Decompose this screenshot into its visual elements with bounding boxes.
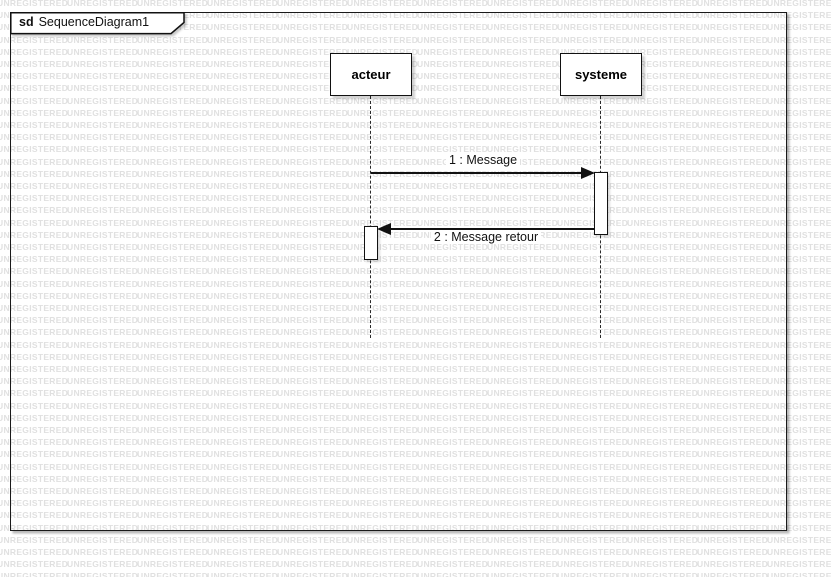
watermark-word: UNREGISTERED bbox=[767, 558, 831, 570]
watermark-word: UNREGISTERED bbox=[207, 534, 277, 546]
watermark-word: UNREGISTERED bbox=[697, 534, 767, 546]
watermark-word: UNREGISTERED bbox=[137, 546, 207, 558]
watermark-word: UNREGISTERED bbox=[137, 570, 207, 577]
watermark-word: UNREGISTERED bbox=[417, 558, 487, 570]
watermark-word: UNREGISTERED bbox=[767, 534, 831, 546]
watermark-word: UNREGISTERED bbox=[67, 570, 137, 577]
watermark-word: UNREGISTERED bbox=[627, 558, 697, 570]
diagram-title: SequenceDiagram1 bbox=[39, 15, 150, 29]
message-2-label[interactable]: 2 : Message retour bbox=[378, 230, 594, 244]
watermark-word: UNREGISTERED bbox=[67, 546, 137, 558]
watermark-word: UNREGISTERED bbox=[347, 558, 417, 570]
watermark-word: UNREGISTERED bbox=[557, 534, 627, 546]
watermark-word: UNREGISTERED bbox=[347, 546, 417, 558]
watermark-word: UNREGISTERED bbox=[767, 546, 831, 558]
watermark-word: UNREGISTERED bbox=[207, 558, 277, 570]
message-2-label-text: 2 : Message retour bbox=[431, 230, 541, 244]
watermark-word: UNREGISTERED bbox=[697, 546, 767, 558]
diagram-canvas: UNREGISTEREDUNREGISTEREDUNREGISTEREDUNRE… bbox=[0, 0, 831, 577]
watermark-word: UNREGISTERED bbox=[557, 546, 627, 558]
lifeline-line-acteur[interactable] bbox=[370, 96, 371, 338]
watermark-word: UNREGISTERED bbox=[0, 558, 67, 570]
sd-frame-label[interactable]: sdSequenceDiagram1 bbox=[10, 12, 190, 38]
watermark-row: UNREGISTEREDUNREGISTEREDUNREGISTEREDUNRE… bbox=[0, 533, 831, 546]
watermark-word: UNREGISTERED bbox=[487, 534, 557, 546]
message-1-arrowhead-right-icon bbox=[581, 167, 595, 179]
watermark-word: UNREGISTERED bbox=[697, 570, 767, 577]
watermark-word: UNREGISTERED bbox=[697, 558, 767, 570]
watermark-word: UNREGISTERED bbox=[417, 570, 487, 577]
watermark-word: UNREGISTERED bbox=[417, 534, 487, 546]
watermark-word: UNREGISTERED bbox=[487, 570, 557, 577]
activation-bar-systeme[interactable] bbox=[594, 172, 608, 235]
watermark-word: UNREGISTERED bbox=[67, 558, 137, 570]
watermark-word: UNREGISTERED bbox=[627, 570, 697, 577]
message-1-label-text: 1 : Message bbox=[446, 153, 520, 167]
watermark-word: UNREGISTERED bbox=[627, 546, 697, 558]
watermark-word: UNREGISTERED bbox=[487, 546, 557, 558]
message-1-label[interactable]: 1 : Message bbox=[371, 153, 595, 167]
watermark-word: UNREGISTERED bbox=[207, 570, 277, 577]
watermark-word: UNREGISTERED bbox=[557, 558, 627, 570]
watermark-word: UNREGISTERED bbox=[0, 570, 67, 577]
watermark-word: UNREGISTERED bbox=[67, 534, 137, 546]
watermark-word: UNREGISTERED bbox=[557, 570, 627, 577]
watermark-row: UNREGISTEREDUNREGISTEREDUNREGISTEREDUNRE… bbox=[0, 557, 831, 570]
lifeline-head-acteur[interactable]: acteur bbox=[330, 53, 412, 96]
message-2-arrowhead-left-icon bbox=[377, 223, 391, 235]
watermark-word: UNREGISTERED bbox=[347, 534, 417, 546]
watermark-word: UNREGISTERED bbox=[277, 546, 347, 558]
watermark-word: UNREGISTERED bbox=[417, 546, 487, 558]
watermark-word: UNREGISTERED bbox=[277, 558, 347, 570]
sd-frame-label-text: sdSequenceDiagram1 bbox=[19, 15, 149, 29]
watermark-word: UNREGISTERED bbox=[767, 570, 831, 577]
watermark-word: UNREGISTERED bbox=[0, 546, 67, 558]
message-1-line[interactable] bbox=[371, 172, 583, 174]
watermark-word: UNREGISTERED bbox=[277, 570, 347, 577]
activation-bar-acteur[interactable] bbox=[364, 226, 378, 260]
watermark-word: UNREGISTERED bbox=[347, 570, 417, 577]
watermark-row: UNREGISTEREDUNREGISTEREDUNREGISTEREDUNRE… bbox=[0, 545, 831, 558]
lifeline-head-systeme[interactable]: systeme bbox=[560, 53, 642, 96]
watermark-row: UNREGISTEREDUNREGISTEREDUNREGISTEREDUNRE… bbox=[0, 569, 831, 577]
watermark-word: UNREGISTERED bbox=[207, 546, 277, 558]
watermark-word: UNREGISTERED bbox=[0, 534, 67, 546]
watermark-word: UNREGISTERED bbox=[487, 558, 557, 570]
watermark-word: UNREGISTERED bbox=[627, 534, 697, 546]
watermark-word: UNREGISTERED bbox=[277, 534, 347, 546]
watermark-word: UNREGISTERED bbox=[137, 558, 207, 570]
sd-keyword: sd bbox=[19, 15, 34, 29]
watermark-word: UNREGISTERED bbox=[137, 534, 207, 546]
